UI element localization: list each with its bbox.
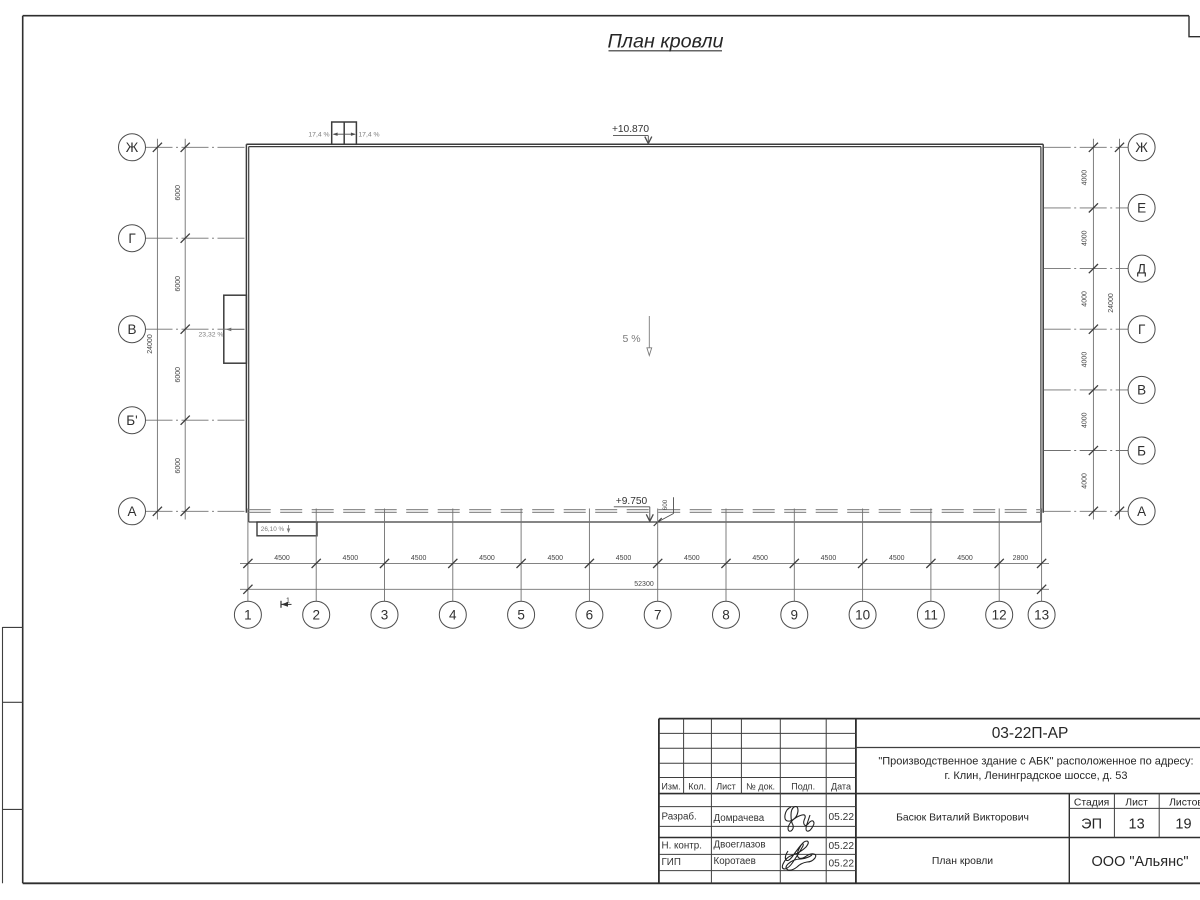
- svg-text:4000: 4000: [1082, 412, 1089, 428]
- svg-text:6000: 6000: [175, 458, 182, 474]
- svg-text:Д: Д: [1137, 261, 1146, 276]
- svg-text:24000: 24000: [147, 334, 154, 354]
- svg-text:5 %: 5 %: [622, 333, 640, 345]
- svg-text:План кровли: План кровли: [607, 30, 723, 52]
- svg-text:4500: 4500: [684, 555, 700, 562]
- svg-text:Кол.: Кол.: [688, 782, 706, 792]
- svg-text:г. Клин, Ленинградское шоссе,: г. Клин, Ленинградское шоссе, д. 53: [945, 770, 1128, 782]
- svg-text:Г: Г: [1138, 322, 1146, 337]
- svg-text:4500: 4500: [343, 555, 359, 562]
- svg-text:4500: 4500: [479, 555, 495, 562]
- svg-text:52300: 52300: [634, 581, 654, 588]
- svg-text:Лист: Лист: [716, 782, 736, 792]
- svg-text:11: 11: [924, 608, 938, 623]
- svg-text:Изм.: Изм.: [661, 782, 680, 792]
- svg-text:"Производственное здание с АБК: "Производственное здание с АБК" располож…: [878, 756, 1193, 768]
- svg-text:4500: 4500: [411, 555, 427, 562]
- svg-text:Ж: Ж: [1135, 140, 1148, 155]
- svg-text:Ж: Ж: [126, 140, 139, 155]
- svg-text:1: 1: [244, 608, 252, 623]
- svg-text:А: А: [1137, 504, 1146, 519]
- svg-text:13: 13: [1129, 817, 1145, 833]
- svg-text:Листов: Листов: [1169, 797, 1200, 808]
- svg-text:+10.870: +10.870: [612, 124, 649, 135]
- svg-text:26,10 %: 26,10 %: [261, 526, 285, 533]
- svg-text:2: 2: [312, 608, 320, 623]
- svg-text:Г: Г: [128, 231, 136, 246]
- svg-text:7: 7: [654, 608, 662, 623]
- svg-text:4500: 4500: [752, 555, 768, 562]
- svg-text:А: А: [127, 504, 136, 519]
- svg-text:24000: 24000: [1108, 293, 1115, 313]
- svg-text:Басюк Виталий Викторович: Басюк Виталий Викторович: [896, 813, 1029, 824]
- svg-text:03-22П-АР: 03-22П-АР: [992, 725, 1069, 742]
- svg-text:4: 4: [449, 608, 457, 623]
- svg-text:8: 8: [722, 608, 730, 623]
- svg-text:№ док.: № док.: [746, 782, 775, 792]
- svg-text:10: 10: [855, 608, 870, 623]
- svg-text:6000: 6000: [175, 276, 182, 292]
- svg-text:ГИП: ГИП: [662, 857, 681, 868]
- svg-text:Дата: Дата: [831, 782, 851, 792]
- svg-text:600: 600: [662, 499, 669, 510]
- svg-text:3: 3: [381, 608, 389, 623]
- svg-text:В: В: [127, 322, 136, 337]
- svg-text:Б: Б: [1137, 443, 1146, 458]
- svg-text:6000: 6000: [175, 367, 182, 383]
- svg-text:05.22: 05.22: [829, 841, 855, 852]
- svg-text:4000: 4000: [1082, 352, 1089, 368]
- svg-text:Б': Б': [126, 413, 137, 428]
- svg-text:Лист: Лист: [1125, 797, 1148, 808]
- svg-text:6: 6: [586, 608, 594, 623]
- svg-text:9: 9: [791, 608, 799, 623]
- svg-text:4500: 4500: [547, 555, 563, 562]
- svg-text:4500: 4500: [274, 555, 290, 562]
- svg-text:Разраб.: Разраб.: [662, 812, 697, 823]
- svg-text:05.22: 05.22: [829, 812, 855, 823]
- svg-text:4000: 4000: [1082, 170, 1089, 186]
- svg-text:17,4 %: 17,4 %: [308, 132, 329, 139]
- svg-text:2800: 2800: [1013, 555, 1029, 562]
- svg-text:1: 1: [286, 598, 290, 605]
- svg-text:Домрачева: Домрачева: [714, 813, 765, 824]
- svg-text:4000: 4000: [1082, 291, 1089, 307]
- svg-text:Н. контр.: Н. контр.: [662, 841, 702, 852]
- svg-text:5: 5: [517, 608, 525, 623]
- svg-text:6000: 6000: [175, 185, 182, 201]
- svg-text:План кровли: План кровли: [932, 856, 993, 867]
- svg-text:Стадия: Стадия: [1074, 797, 1109, 808]
- svg-text:В: В: [1137, 383, 1146, 398]
- svg-text:19: 19: [1175, 817, 1191, 833]
- svg-text:ЭП: ЭП: [1081, 817, 1102, 833]
- svg-text:Е: Е: [1137, 201, 1146, 216]
- svg-text:05.22: 05.22: [829, 859, 855, 870]
- svg-text:23,32 %: 23,32 %: [199, 332, 224, 339]
- svg-text:ООО "Альянс": ООО "Альянс": [1092, 854, 1189, 870]
- svg-text:4500: 4500: [957, 555, 973, 562]
- svg-text:13: 13: [1034, 608, 1049, 623]
- svg-text:Двоеглазов: Двоеглазов: [714, 840, 766, 851]
- svg-text:4500: 4500: [821, 555, 837, 562]
- svg-text:4500: 4500: [889, 555, 905, 562]
- svg-text:4000: 4000: [1082, 230, 1089, 246]
- svg-text:17,4 %: 17,4 %: [358, 132, 379, 139]
- svg-text:+9.750: +9.750: [616, 496, 648, 507]
- svg-text:4000: 4000: [1082, 473, 1089, 489]
- svg-text:4500: 4500: [616, 555, 632, 562]
- svg-text:12: 12: [992, 608, 1007, 623]
- svg-text:Подп.: Подп.: [791, 782, 815, 792]
- svg-text:Коротаев: Коротаев: [714, 856, 756, 867]
